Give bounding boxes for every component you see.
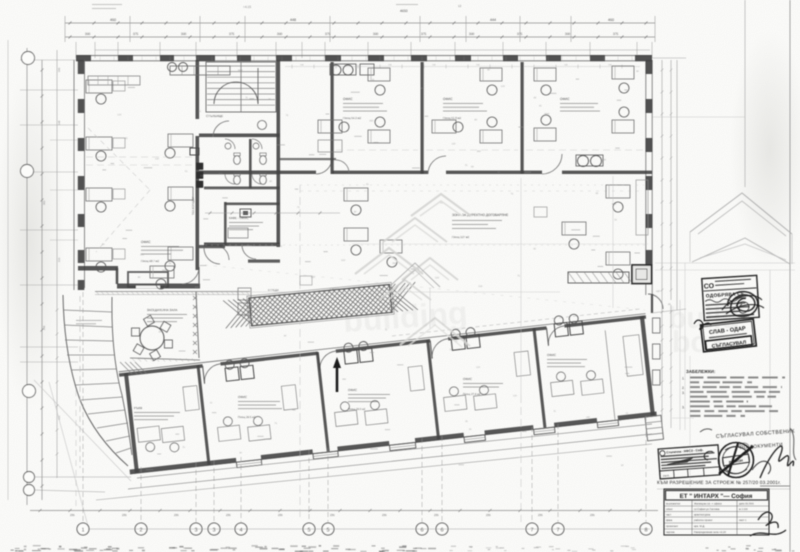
svg-text:5: 5: [307, 527, 310, 533]
svg-text:510: 510: [479, 285, 484, 288]
svg-text:7: 7: [530, 527, 533, 533]
svg-text:375: 375: [421, 32, 427, 36]
svg-text:8 ГРЕДИ: 8 ГРЕДИ: [268, 289, 279, 292]
svg-text:510: 510: [341, 259, 346, 262]
svg-text:ОФИС: ОФИС: [560, 97, 570, 101]
svg-text:РЪКВ: РЪКВ: [134, 406, 142, 410]
svg-text:Площ 48.7 м2: Площ 48.7 м2: [141, 259, 159, 263]
svg-text:3: 3: [194, 527, 197, 533]
svg-text:120: 120: [140, 253, 145, 256]
svg-text:510: 510: [435, 276, 440, 279]
svg-text:ОФИС: ОФИС: [443, 97, 453, 101]
svg-text:работен проект: работен проект: [694, 519, 713, 522]
svg-text:120: 120: [501, 85, 506, 88]
svg-text:СХЕМА: СХЕМА: [330, 288, 339, 291]
svg-text:120: 120: [570, 238, 575, 241]
svg-text:235: 235: [434, 513, 439, 517]
svg-text:4650: 4650: [400, 9, 408, 13]
svg-text:възложител: възложител: [666, 503, 681, 506]
svg-text:235: 235: [278, 513, 283, 517]
svg-text:260: 260: [218, 173, 223, 176]
svg-text:148: 148: [58, 120, 61, 125]
svg-text:375: 375: [517, 32, 523, 36]
svg-text:съгл.: съгл.: [663, 473, 670, 477]
svg-text:235: 235: [590, 513, 595, 517]
svg-text:390: 390: [85, 32, 91, 36]
svg-text:ОФИС: ОФИС: [343, 97, 353, 101]
svg-text:обект: обект: [666, 508, 674, 511]
svg-text:363: 363: [43, 200, 46, 205]
svg-text:Жилищна сгр. + офиси: Жилищна сгр. + офиси: [694, 503, 722, 506]
svg-text:6: 6: [420, 527, 423, 533]
svg-text:СТЪЛБИЩЕ: СТЪЛБИЩЕ: [206, 114, 223, 118]
svg-text:3.: 3.: [682, 405, 685, 409]
svg-text:235: 235: [226, 513, 231, 517]
svg-text:260: 260: [369, 120, 374, 123]
svg-text:ОФИС: ОФИС: [141, 240, 151, 244]
svg-text:460: 460: [608, 18, 614, 22]
svg-text:7: 7: [556, 527, 559, 533]
svg-text:Площ 127 м2: Площ 127 м2: [452, 235, 470, 239]
svg-text:390: 390: [565, 32, 571, 36]
svg-text:Площ 51.0 м2: Площ 51.0 м2: [443, 116, 461, 120]
svg-text:ЕТ " ИНТАРХ "— София: ЕТ " ИНТАРХ "— София: [680, 493, 753, 500]
svg-text:ЗАСЕДАТЕЛНА ЗАЛА: ЗАСЕДАТЕЛНА ЗАЛА: [147, 308, 177, 312]
svg-text:375: 375: [229, 32, 235, 36]
svg-text:ОФИС: ОФИС: [238, 395, 248, 399]
svg-text:3: 3: [212, 527, 215, 533]
svg-text:ТЕХ.КОРИДОР: ТЕХ.КОРИДОР: [192, 196, 195, 215]
svg-text:Площ 27.4 м2: Площ 27.4 м2: [463, 393, 481, 396]
svg-text:120: 120: [155, 158, 160, 161]
svg-text:гр.София ул.Тинтява: гр.София ул.Тинтява: [694, 508, 720, 511]
svg-text:235: 235: [70, 513, 75, 517]
svg-text:375: 375: [325, 32, 331, 36]
svg-text:6: 6: [440, 527, 443, 533]
svg-text:част: част: [666, 514, 672, 517]
svg-text:ОФИС: ОФИС: [463, 377, 473, 381]
svg-text:375: 375: [133, 32, 139, 36]
svg-text:м 1:100: м 1:100: [739, 508, 748, 511]
svg-text:510: 510: [58, 257, 61, 262]
svg-text:296: 296: [43, 325, 46, 330]
svg-text:Площ 29.0 м2: Площ 29.0 м2: [348, 408, 366, 411]
svg-text:ЗАБЕЛЕЖКИ:: ЗАБЕЛЕЖКИ:: [686, 369, 716, 374]
svg-text:Площ 54.2 м2: Площ 54.2 м2: [343, 116, 361, 120]
svg-text:235: 235: [538, 513, 543, 517]
svg-text:260: 260: [392, 262, 397, 265]
svg-text:1.: 1.: [682, 377, 685, 381]
svg-text:595: 595: [58, 67, 61, 72]
svg-text:390: 390: [277, 32, 283, 36]
svg-text:120: 120: [513, 394, 518, 397]
svg-text:3.: 3.: [682, 391, 685, 395]
svg-text:ОФИС: ОФИС: [547, 353, 557, 357]
svg-text:КАФЕ - ОФИС: КАФЕ - ОФИС: [229, 216, 249, 220]
svg-text:+4.15: +4.15: [243, 5, 251, 9]
svg-text:235: 235: [486, 513, 491, 517]
svg-text:чертеж: чертеж: [666, 531, 675, 534]
svg-text:460: 460: [110, 18, 116, 22]
svg-text:120: 120: [476, 366, 481, 369]
svg-text:Разпределение кота +3.20: Разпределение кота +3.20: [694, 531, 726, 534]
svg-text:СО: СО: [704, 283, 715, 291]
svg-text:фаза: фаза: [666, 519, 673, 522]
svg-text:дата 03.2001: дата 03.2001: [739, 503, 755, 506]
svg-text:5: 5: [326, 527, 329, 533]
svg-text:1: 1: [81, 527, 84, 533]
svg-text:375: 375: [613, 32, 619, 36]
svg-text:арх. М.Д.: арх. М.Д.: [694, 525, 705, 528]
svg-text:проектант: проектант: [666, 525, 679, 528]
svg-text:260: 260: [477, 150, 482, 153]
svg-text:Площ 28.5 м2: Площ 28.5 м2: [238, 416, 256, 419]
svg-text:8: 8: [644, 527, 647, 533]
svg-text:235: 235: [330, 513, 335, 517]
svg-text:235: 235: [382, 513, 387, 517]
svg-text:390: 390: [181, 32, 187, 36]
svg-text:ОФИС: ОФИС: [348, 388, 358, 392]
svg-text:137: 137: [656, 290, 661, 293]
svg-text:235: 235: [122, 513, 127, 517]
svg-text:390: 390: [373, 32, 379, 36]
svg-text:2: 2: [139, 527, 142, 533]
svg-text:390: 390: [469, 32, 475, 36]
svg-text:лист 1: лист 1: [739, 519, 747, 522]
svg-text:120: 120: [311, 276, 316, 279]
svg-text:448: 448: [290, 18, 296, 22]
svg-text:12: 12: [458, 4, 462, 8]
svg-text:120: 120: [452, 143, 457, 146]
svg-text:235: 235: [174, 513, 179, 517]
svg-text:260: 260: [586, 416, 591, 419]
svg-text:КЪМ РАЗРЕШЕНИЕ ЗА СТРОЕЖ № 25: КЪМ РАЗРЕШЕНИЕ ЗА СТРОЕЖ № 257/20 03.200…: [657, 480, 781, 485]
svg-text:444: 444: [490, 18, 496, 22]
svg-text:2.: 2.: [682, 386, 685, 390]
svg-text:4: 4: [239, 527, 242, 533]
svg-text:архитектурна: архитектурна: [694, 514, 711, 517]
svg-text:120: 120: [117, 114, 122, 117]
